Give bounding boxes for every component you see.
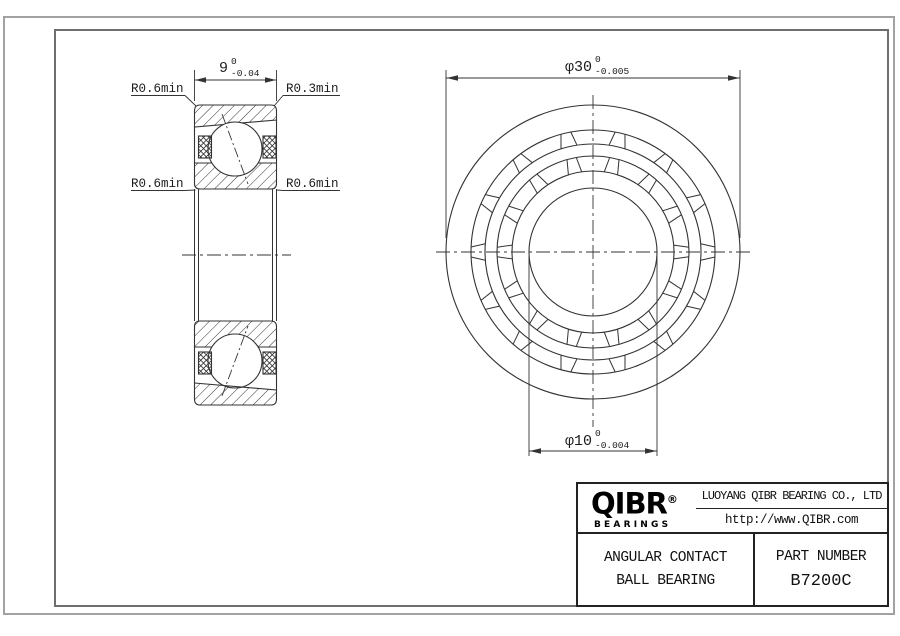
outer-diameter-tol-top: 0	[595, 54, 601, 65]
cage-top-right	[263, 136, 276, 158]
brand-logo-text: QIBR®	[591, 485, 696, 519]
product-type-line2: BALL BEARING	[616, 573, 714, 589]
outer-diameter-tol-bottom: -0.005	[595, 66, 630, 77]
part-number-value: B7200C	[790, 572, 851, 591]
radius-label-top-right: R0.3min	[286, 82, 339, 96]
title-block: QIBR® BEARINGS LUOYANG QIBR BEARING CO.,…	[576, 482, 889, 607]
registered-mark: ®	[667, 493, 678, 506]
company-info: LUOYANG QIBR BEARING CO., LTD http://www…	[696, 484, 887, 532]
product-type-line1: ANGULAR CONTACT	[604, 550, 727, 566]
brand-logo: QIBR® BEARINGS	[578, 484, 696, 532]
title-block-detail-row: ANGULAR CONTACT BALL BEARING PART NUMBER…	[578, 534, 887, 605]
bore-diameter-tol-bottom: -0.004	[595, 440, 630, 451]
radius-label-mid-left: R0.6min	[131, 177, 184, 191]
width-dimension-tol-bottom: -0.04	[231, 68, 260, 79]
outer-diameter-value: φ30	[565, 59, 592, 76]
bore-diameter-tol-top: 0	[595, 428, 601, 439]
company-website: http://www.QIBR.com	[696, 509, 887, 533]
cage-bottom-right	[263, 352, 276, 374]
width-dimension-tol-top: 0	[231, 56, 237, 67]
cage-bottom-left	[199, 352, 212, 374]
brand-logo-subtext: BEARINGS	[591, 520, 696, 530]
part-number-cell: PART NUMBER B7200C	[755, 534, 887, 605]
company-name: LUOYANG QIBR BEARING CO., LTD	[696, 484, 887, 509]
part-number-label: PART NUMBER	[776, 549, 866, 565]
cage-top-left	[199, 136, 212, 158]
bore-diameter-value: φ10	[565, 433, 592, 450]
front-view	[436, 95, 750, 427]
product-type-cell: ANGULAR CONTACT BALL BEARING	[578, 534, 755, 605]
brand-name: QIBR	[591, 487, 667, 521]
width-dimension-value: 9	[219, 60, 228, 77]
radius-label-top-left: R0.6min	[131, 82, 184, 96]
section-view	[182, 105, 291, 405]
drawing-sheet: 9 0 -0.04 R0.6min R0.3min R0.6min R0.6mi…	[0, 0, 900, 636]
title-block-header-row: QIBR® BEARINGS LUOYANG QIBR BEARING CO.,…	[578, 484, 887, 534]
outer-ring-bottom-section	[195, 383, 277, 405]
radius-label-mid-right: R0.6min	[286, 177, 339, 191]
